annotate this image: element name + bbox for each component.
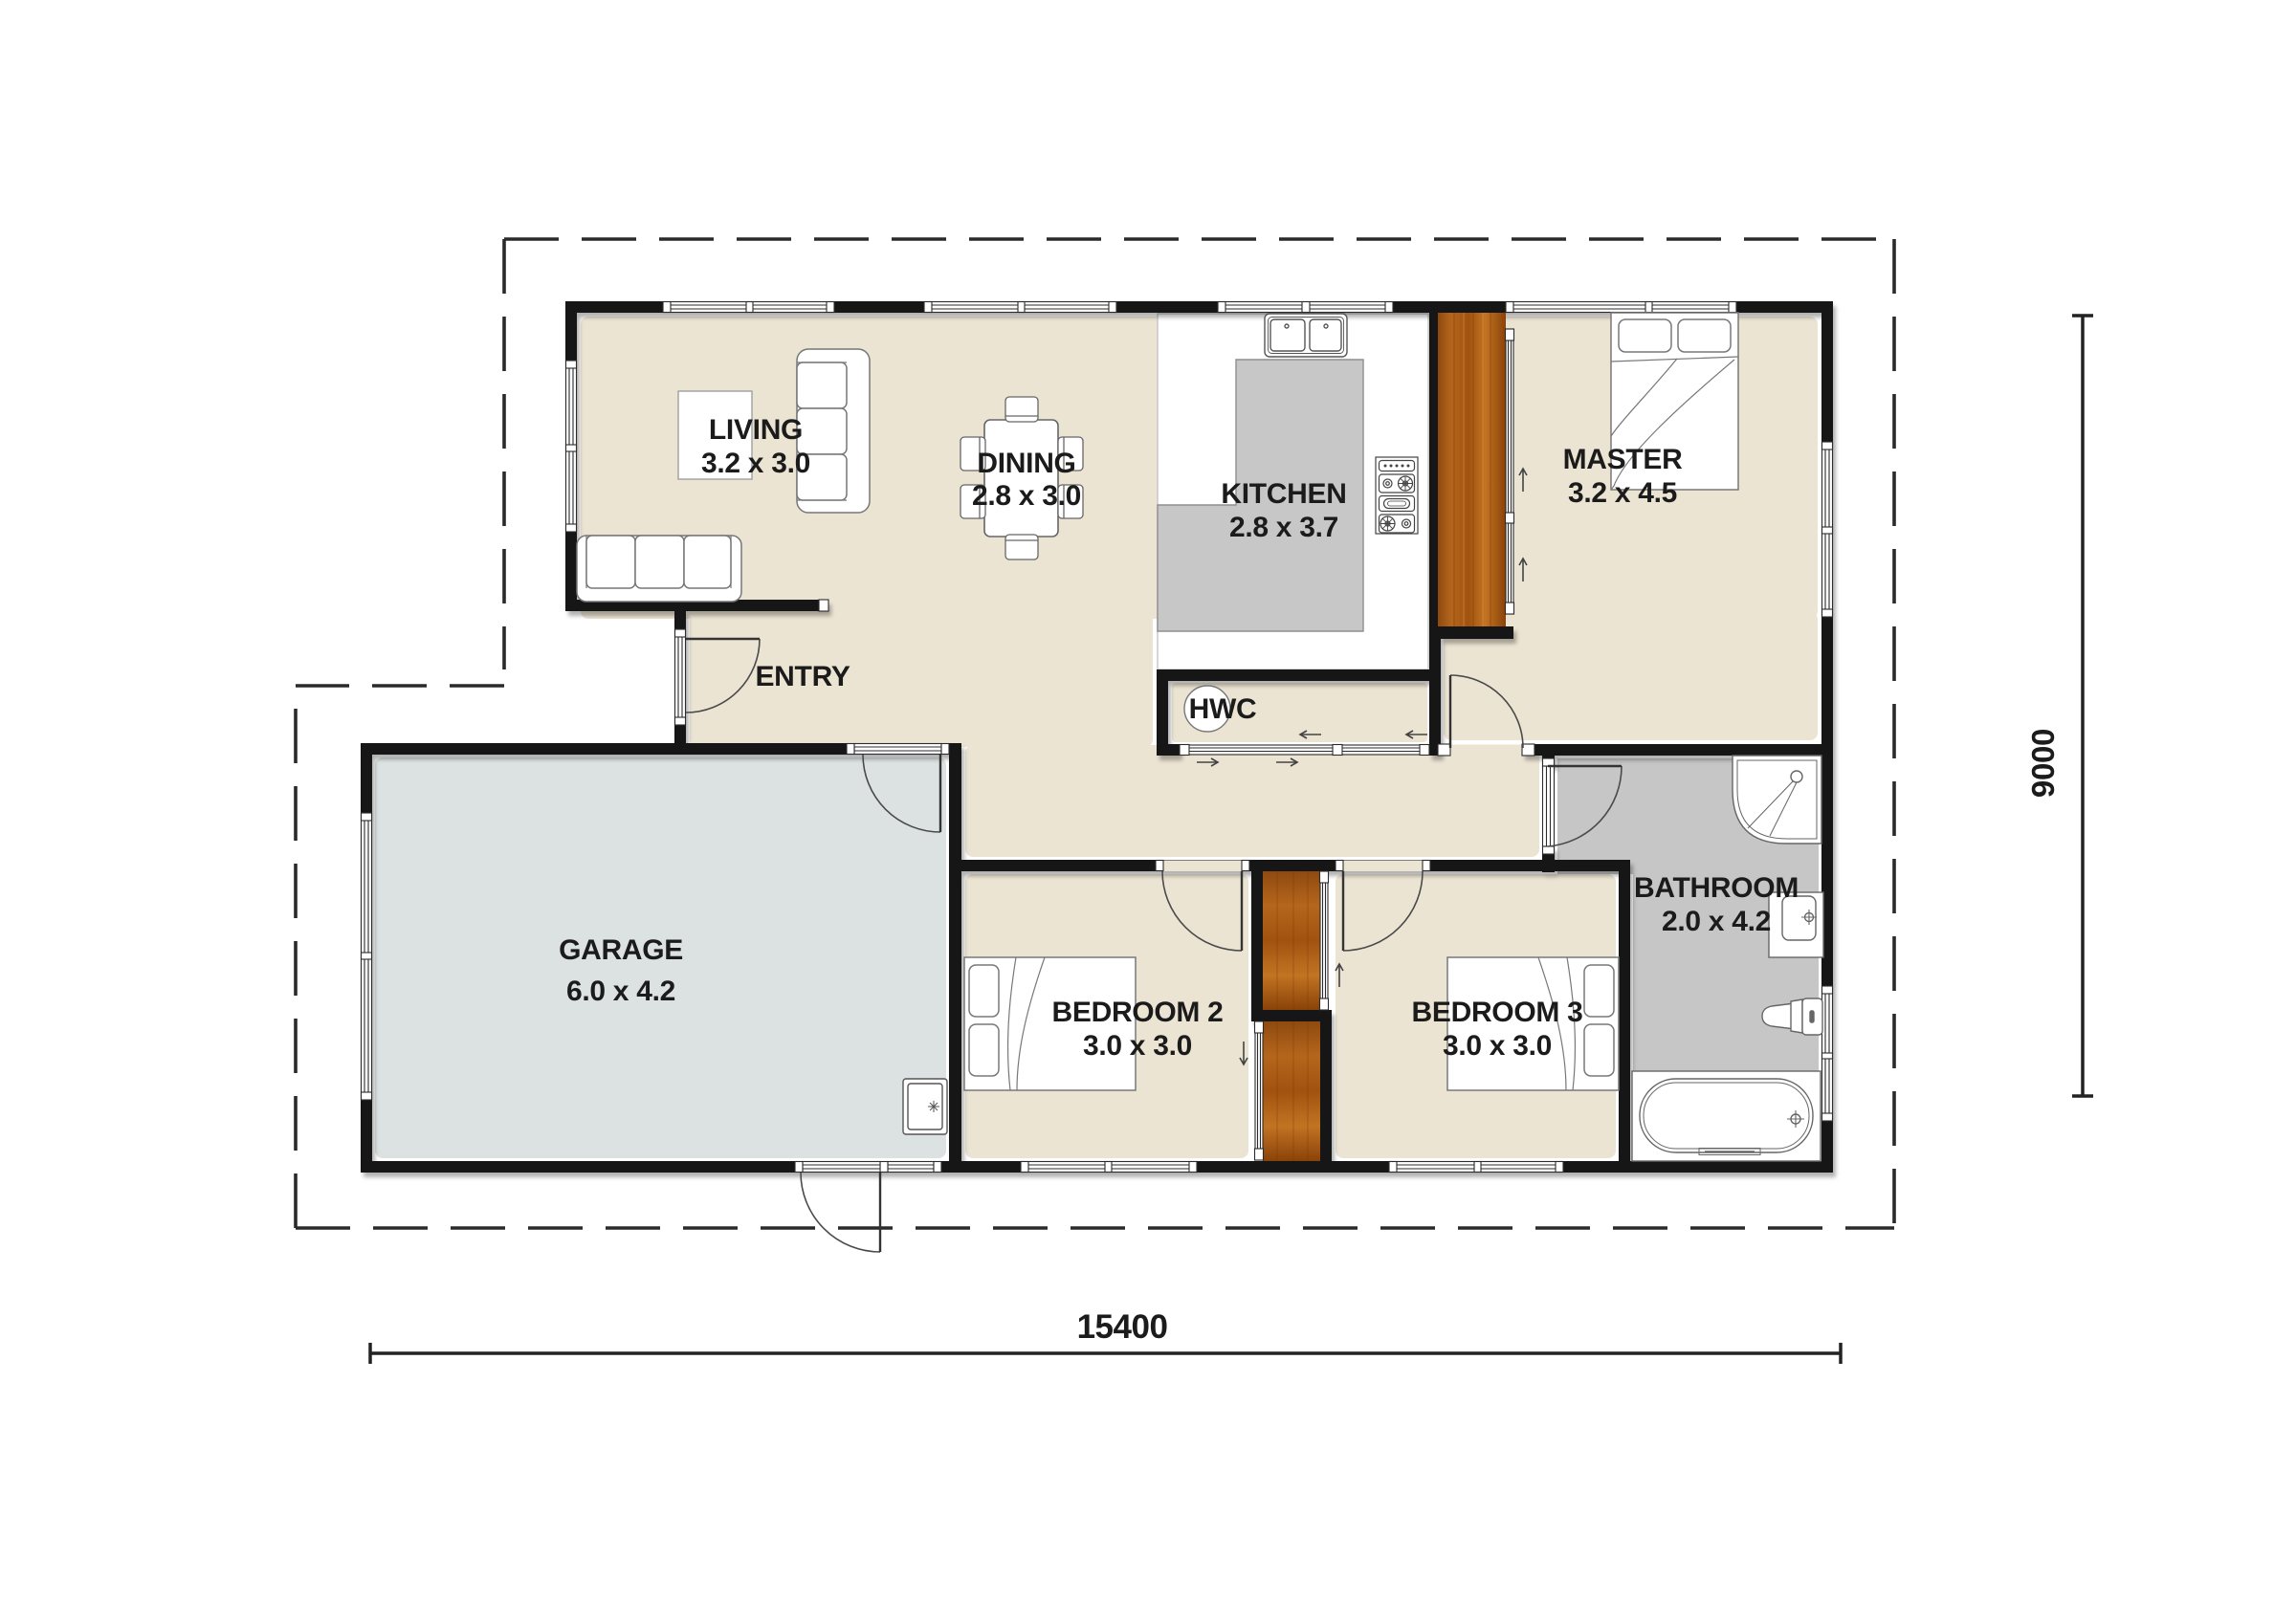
svg-text:GARAGE: GARAGE	[559, 934, 683, 966]
svg-text:3.0 x 3.0: 3.0 x 3.0	[1443, 1030, 1552, 1062]
svg-text:2.0 x 4.2: 2.0 x 4.2	[1662, 906, 1771, 937]
svg-text:15400: 15400	[1077, 1308, 1168, 1346]
svg-text:BEDROOM 2: BEDROOM 2	[1052, 997, 1224, 1028]
svg-text:HWC: HWC	[1189, 693, 1257, 725]
svg-text:3.2 x 4.5: 3.2 x 4.5	[1568, 477, 1677, 509]
svg-text:9000: 9000	[2025, 729, 2061, 798]
svg-text:DINING: DINING	[977, 448, 1075, 479]
svg-text:BATHROOM: BATHROOM	[1634, 872, 1799, 904]
svg-text:2.8 x 3.7: 2.8 x 3.7	[1229, 512, 1338, 543]
svg-text:3.0 x 3.0: 3.0 x 3.0	[1083, 1030, 1192, 1062]
svg-text:6.0 x 4.2: 6.0 x 4.2	[566, 976, 675, 1007]
svg-text:ENTRY: ENTRY	[755, 661, 850, 692]
svg-text:LIVING: LIVING	[709, 414, 803, 446]
svg-text:2.8 x 3.0: 2.8 x 3.0	[972, 480, 1081, 512]
svg-text:3.2 x 3.0: 3.2 x 3.0	[701, 448, 810, 479]
svg-text:KITCHEN: KITCHEN	[1221, 478, 1346, 510]
svg-text:BEDROOM 3: BEDROOM 3	[1412, 997, 1583, 1028]
svg-text:MASTER: MASTER	[1563, 444, 1684, 475]
